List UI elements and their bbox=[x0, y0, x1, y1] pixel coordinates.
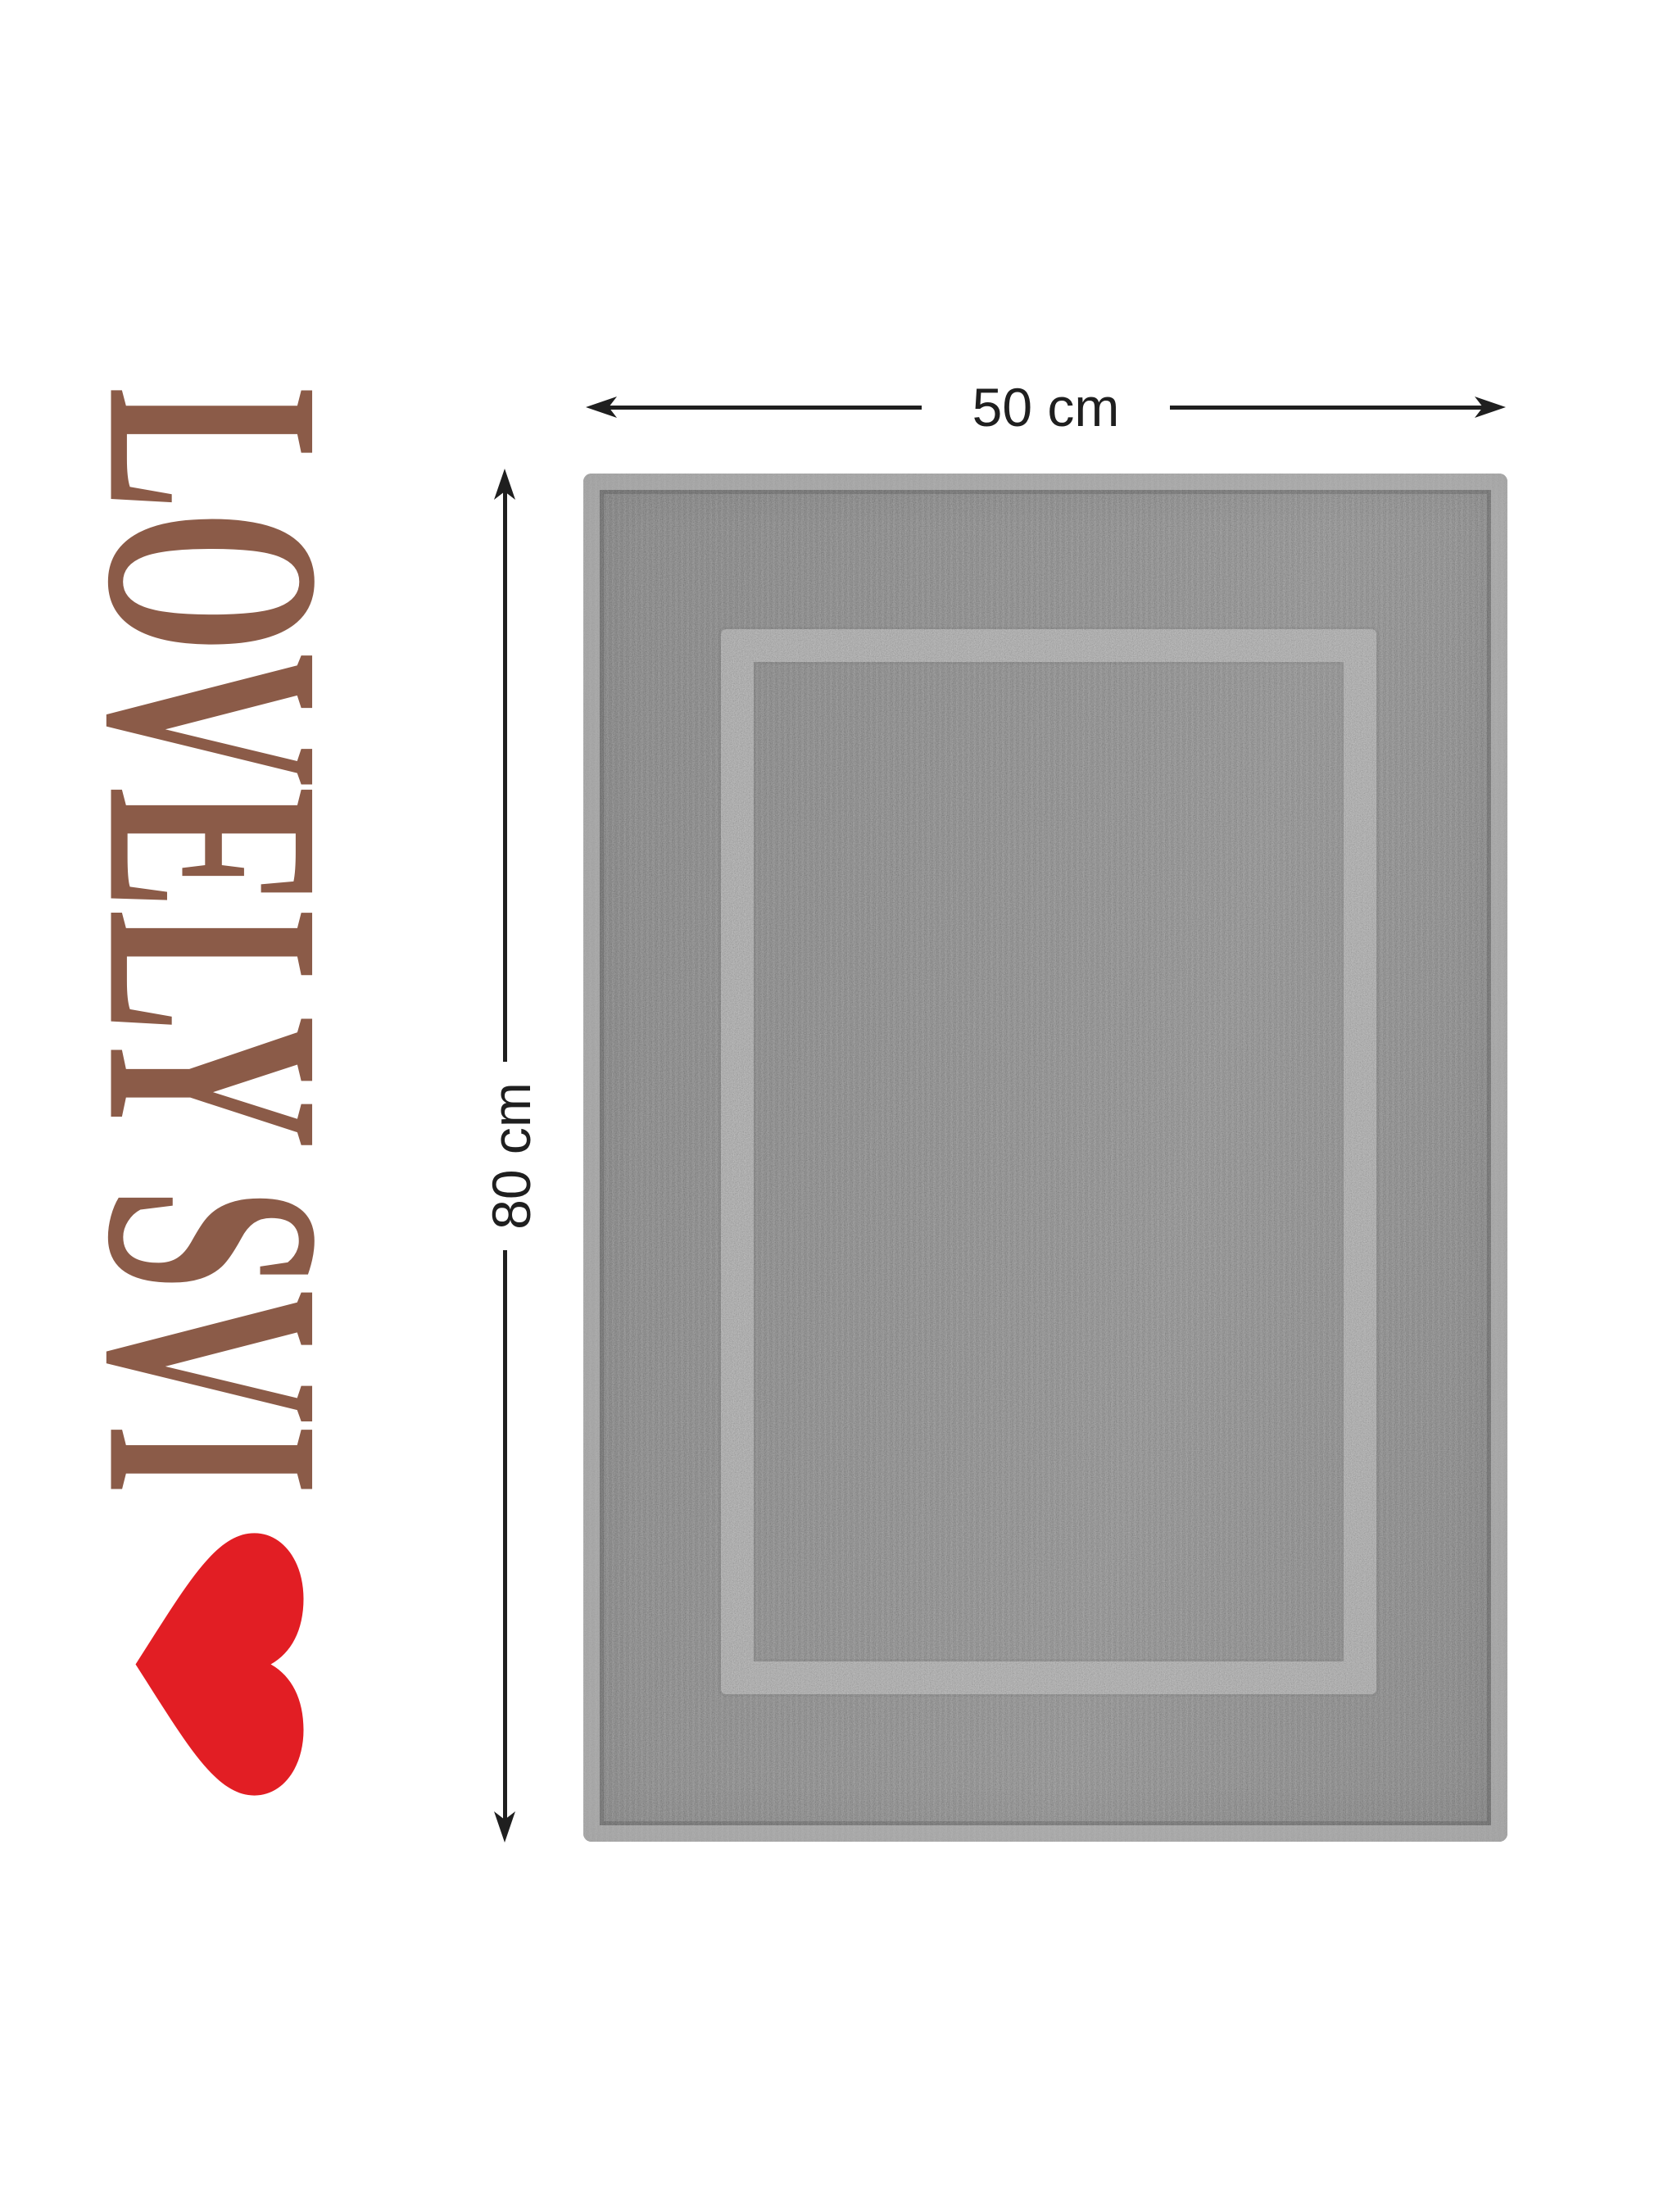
height-dimension: 80 cm bbox=[472, 469, 537, 1843]
mat-hem-edge bbox=[583, 474, 1507, 1842]
width-label: 50 cm bbox=[913, 376, 1179, 438]
brand-logo: LOVELY SVI bbox=[107, 388, 320, 1811]
arrow-down-icon bbox=[494, 1811, 515, 1843]
heart-icon bbox=[111, 1522, 316, 1807]
width-dimension: 50 cm bbox=[586, 374, 1506, 440]
height-label-gap: 80 cm bbox=[472, 1054, 537, 1258]
dimension-line bbox=[609, 406, 922, 410]
dimension-line bbox=[1170, 406, 1483, 410]
arrow-right-icon bbox=[1475, 397, 1506, 418]
bath-mat-photo bbox=[583, 474, 1507, 1842]
product-image: LOVELY SVI 50 cm 80 cm bbox=[0, 0, 1659, 2212]
dimension-line bbox=[503, 492, 507, 1062]
height-label: 80 cm bbox=[480, 1082, 542, 1230]
dimension-line bbox=[503, 1250, 507, 1820]
brand-logo-text: LOVELY SVI bbox=[107, 388, 320, 1496]
